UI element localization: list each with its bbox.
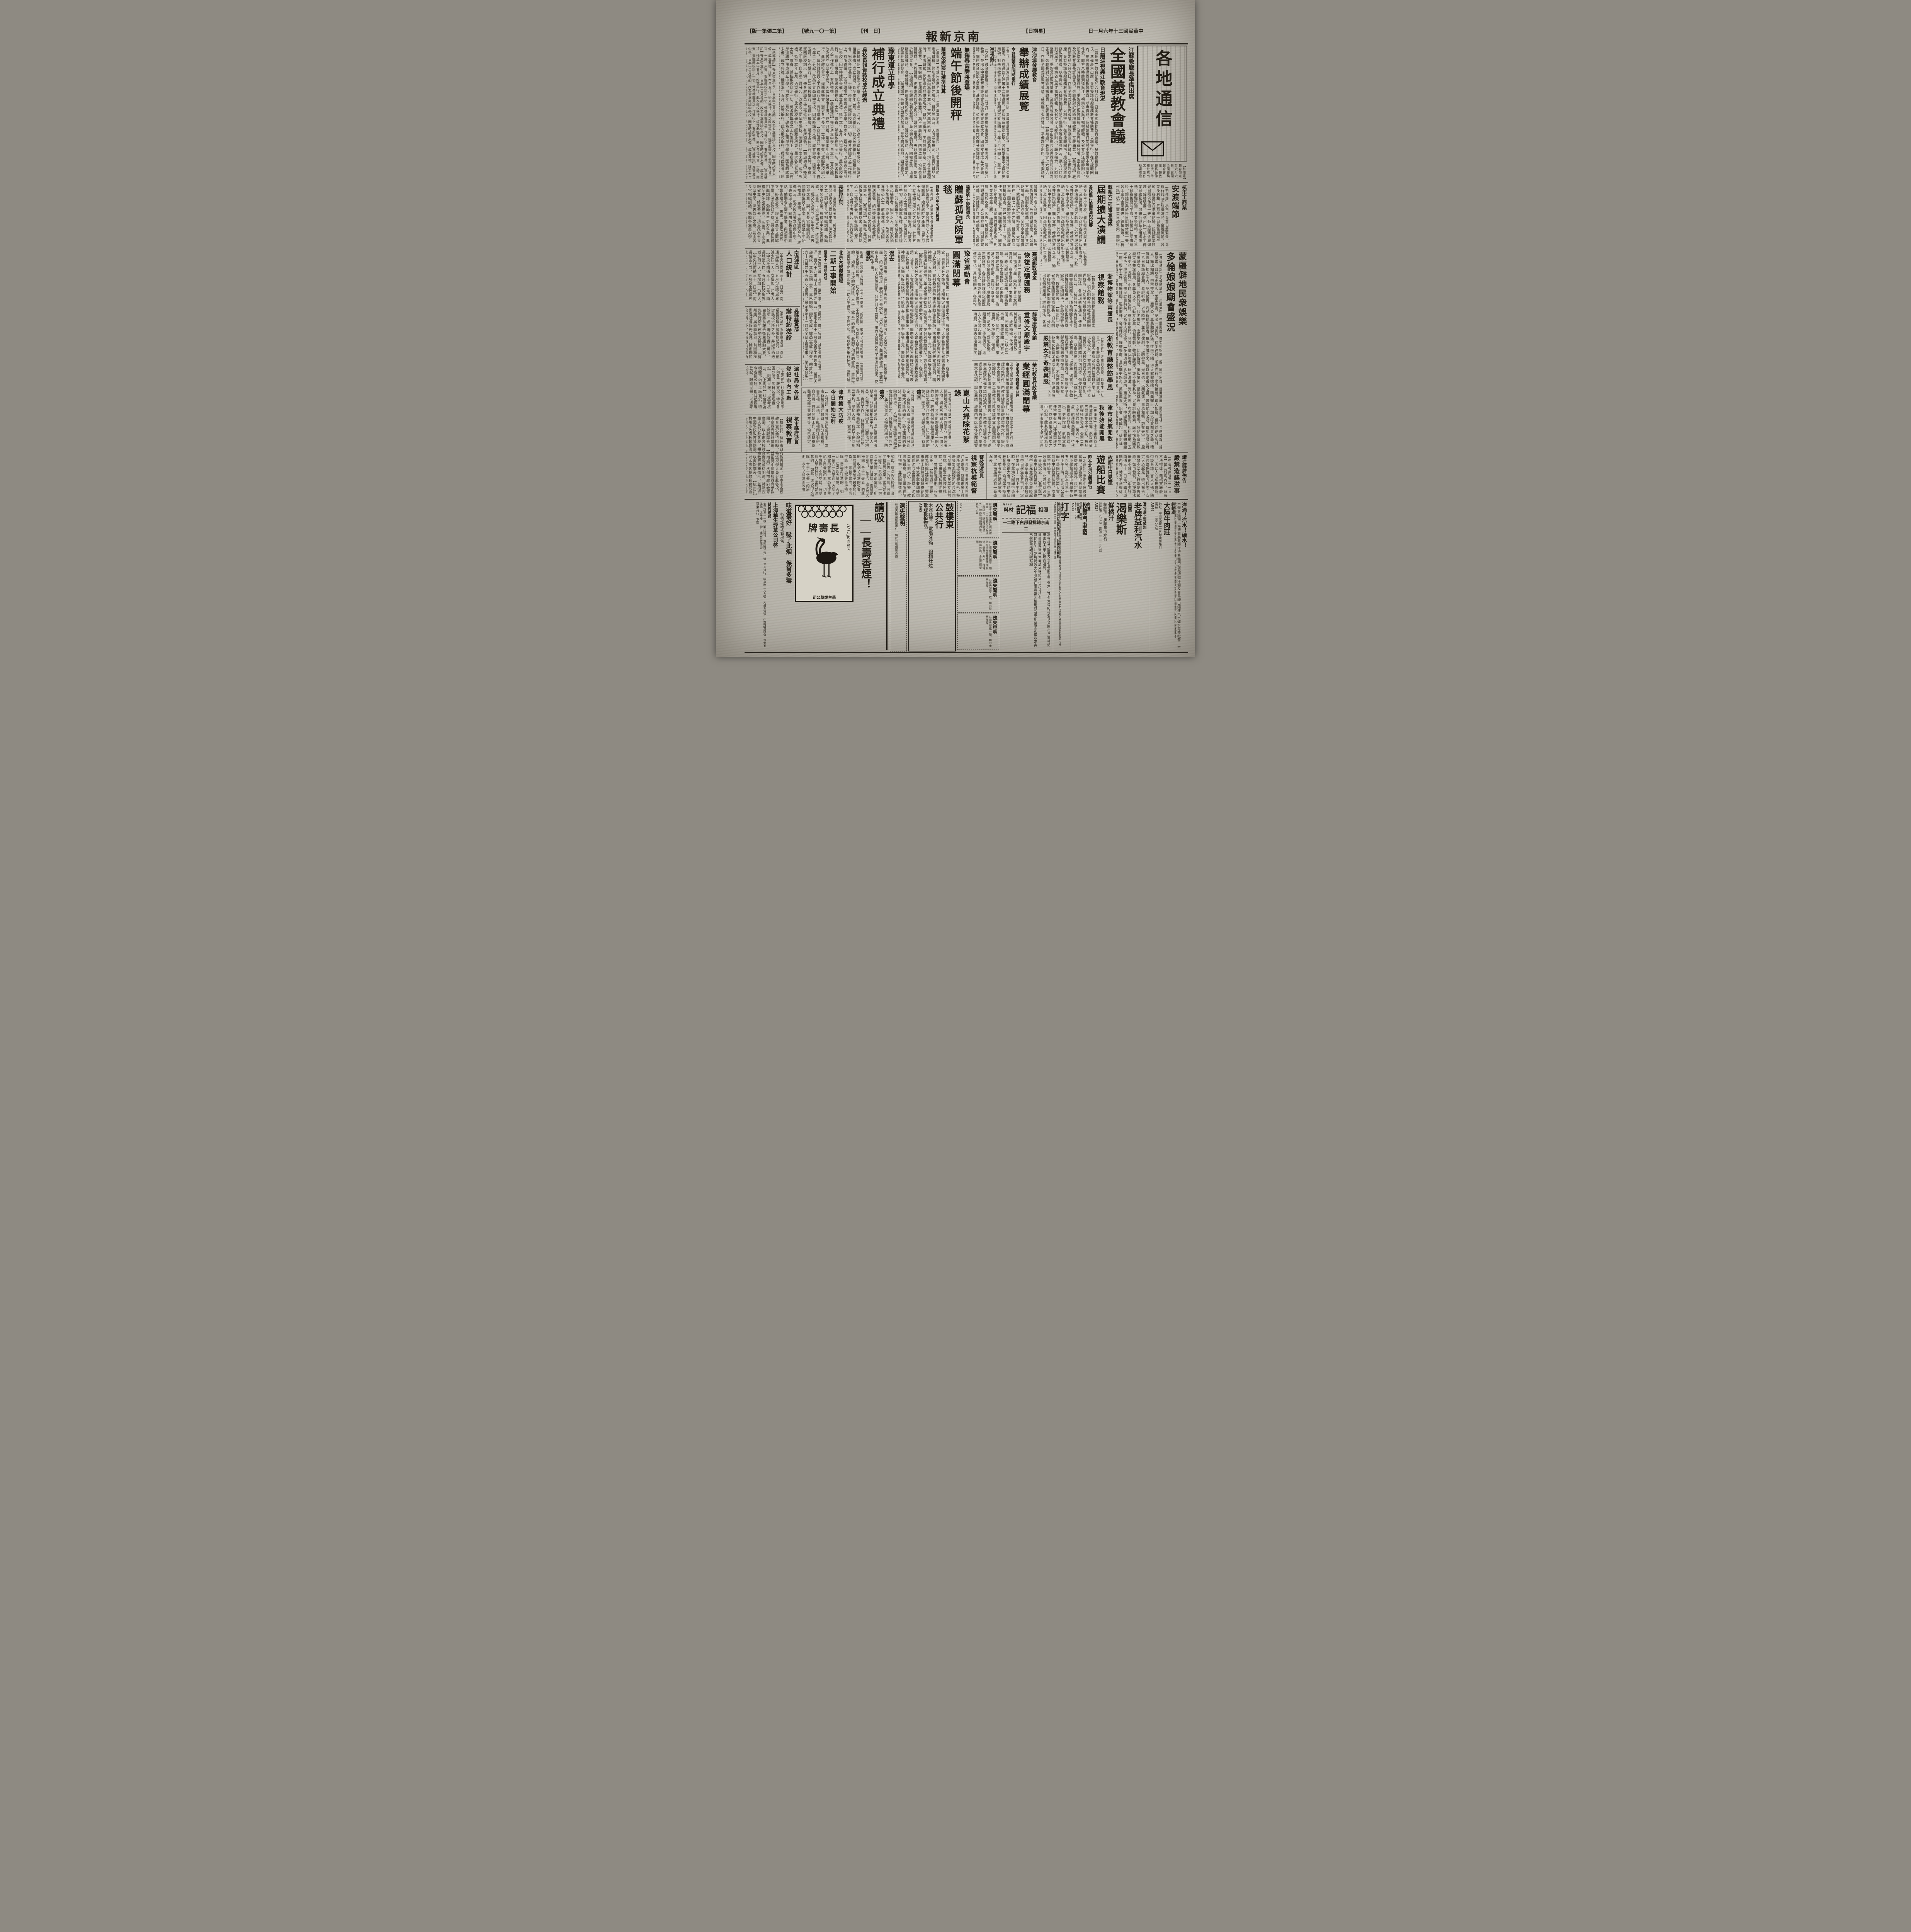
- ad-phone: 電話 二一三六七號: [1154, 502, 1158, 650]
- ad-line-3: 其他如AI乾片特製大小號箱在庫豐富照相用具及應用藥品定價非常克已荷蒙惠顧竭誠歡迎: [1028, 533, 1037, 649]
- article-kicker: 吳縣縣黨部: [793, 308, 799, 362]
- envelope-icon: [1141, 141, 1164, 158]
- article-quanguo: 江蘇教廳長準備出席 全國義教會議 日前巡視吳江教育現況 【蘇州訊】教育部定於六月…: [1039, 46, 1136, 182]
- article-body: 及收支教項清冊、呈署備查云、議案迄十四件、遂由主席將預備會議議決案件、計由教育總…: [973, 362, 1013, 451]
- ad-title-2-big: 渴樂斯: [1114, 502, 1127, 650]
- ad-kicker: 高價: [1087, 502, 1090, 650]
- notice-title: 遺失聲明: [898, 503, 905, 650]
- article-title: 二期工事開始: [828, 250, 836, 385]
- lead-in-1-body: 大掃除、是經首屆縣政會議討論決定、各機關人員三呼之下、並分別發給大掃除的舉行、防…: [884, 389, 914, 451]
- article-body: 業已大部完成、其第二期工事、亦已開始、即可完成、據悉全部工程費、約計洋一百六十九…: [803, 250, 821, 385]
- article-subtitle: 該院本月中旬補行開幕: [934, 185, 939, 246]
- article-body: 【天津訊】津市擴大防疫注射、本市各路要道注射班、則分金鋼橋、金華橋、旱橋、大紅橋…: [803, 389, 828, 451]
- article-kicker: 津海道發展教育: [1031, 47, 1037, 180]
- lost-notice-3: 遺失聲明 茲遺失證章一枚、特此聲明作廢、: [957, 577, 999, 613]
- edition-label: 【第二張第一版】: [747, 27, 787, 34]
- article-title: 遊船比賽: [1094, 455, 1105, 497]
- article-body: 【天津訊】津市雖有京山津浦兩線之便、然以適值五河匯集之中心點、故其航運極為發達、…: [1041, 405, 1097, 451]
- article-kicker: 故都中日兒童: [1107, 455, 1113, 497]
- article-body: 【中央社南通三十一日電】靖江城廂內外、時有不法棍徒、藉端實施敲詐、因此人心愈形惶…: [1116, 455, 1171, 497]
- bottom-rule: [745, 652, 1188, 653]
- article-body-2: 【又訊】教育廳張廳長、前日（廿九）偕同廳祕書張仰高、彭世芳、巡視吳江教育、並出席…: [973, 47, 988, 180]
- article-body: 【杭州訊】警政部為明瞭江浙兩省、暨滬市警士教練所辦理模範警情形、特派參事兼訓練司…: [898, 455, 968, 497]
- article-juntan: 陸軍第十師謝師長 贈蘇孤兒院軍毯 該院本月中旬補行開幕 【蘇州訊】吳縣私立孤兒教…: [846, 183, 971, 247]
- article-body: 【蘇州訊】吳縣私立孤兒教養院自開始籌備以來、蒙各界熱心人士慷慨解囊、始有該院之產…: [847, 185, 933, 246]
- article-title-line-2: 登記市內工廠: [785, 366, 791, 412]
- article-title: 視察杭模範警: [970, 455, 977, 497]
- article-judu: 蘇組六三拒毒宣傳隊 屆期擴大演講 各校舉行拒毒演說比賽 通令各中小學校、舉行拒毒…: [1039, 183, 1114, 270]
- ad-fuji-photo-supplies: 照相 福記 材料 A779 南京總批發部白下路二一二 利根櫻花筒裝及大包全紙五百…: [1000, 501, 1052, 651]
- ad-name: 大昌行啓: [1077, 502, 1080, 650]
- column-logo: 各地通信: [1137, 46, 1187, 162]
- article-wenmiao: 靜海唐官屯鎮 重修文廟殿宇 【靜海訊】頃據唐官屯鎮紳民呈稱、孔廟歷受致祭、歲時補…: [972, 310, 1038, 359]
- notice-body: 茲在揚州遺失圖章一顆、除在揚州登報聲明作廢外、倘有中外人士拾得、均屬無效、合應登…: [959, 541, 992, 574]
- article-body: 【中央社南通三十一日電】南通城區人口、五月份比較男界減少四一人、女增加一〇五人、…: [746, 250, 783, 304]
- article-zhefeng: 浙教育廳整飭學風 【杭州訊】浙省教育廳、以學生一切言行、各教職員悉應共負訓導責任…: [1039, 333, 1114, 402]
- daily-label: 【日 刊】: [858, 27, 883, 34]
- weekday-label: 【星期日】: [1023, 27, 1048, 34]
- article-fangyi: 津市擴大防疫 今日開始注射 【天津訊】津市擴大防疫注射、本市各路要道注射班、則分…: [801, 388, 845, 452]
- article-jingzheng: 警政部派員 視察杭模範警 【杭州訊】警政部為明瞭江浙兩省、暨滬市警士教練所辦理模…: [897, 453, 985, 499]
- notice-body: 茲迭失印鑑一顆、特此申明作廢、: [959, 616, 992, 648]
- article-kicker: 靜海唐官屯鎮: [1031, 312, 1037, 358]
- logo-foot-text: 【蘇州訊】教育部定於六月六日、召開全國義務教育會議、蘇教廳長張仲賢氏、準備赴京出…: [1137, 162, 1187, 182]
- ad-typing-school: 打字 本所開辦歷十二載已呈奉市府批准備案現擴充添設城南城北分所以便利來學之士續招…: [1053, 501, 1070, 651]
- notice-code: B3614: [959, 503, 962, 536]
- article-body: 【杭州訊】杭市工商業日趨繁榮、即銀行錢莊亦組織蓬勃、金融流通、各業多利賴、五月三…: [1116, 185, 1168, 247]
- article-songzhen: 吳縣縣黨部 辦特約送診 【蘇州訊】吳縣縣黨部、前因積極辦理社會服務起見、除創辦民…: [745, 306, 800, 363]
- cigarettes-illustration: [796, 505, 852, 520]
- ad-exchange-addresses: 太平路三一一號 瀨川洋行 莫愁路二六二號 三井洋行 中華路二八九號 大昌五洋號 …: [760, 502, 767, 650]
- article-title-line-1: 豫省運動會: [962, 250, 970, 385]
- article-title: 嚴禁造謠滋事: [1173, 455, 1180, 497]
- article-body: 通令各中小學校、舉行拒毒演說比賽、㈤製發標語、及告民衆書、㈥商請各報館出版拒毒專…: [1041, 185, 1086, 269]
- notice-title: 遺失聲明: [992, 503, 998, 536]
- notice-title: 迭失申明: [992, 616, 998, 648]
- article-huabei: 華北教育行政會議 業經圓滿閉幕 決定通令辦理案四件 及收支教項清冊、呈署備查云、…: [972, 361, 1038, 452]
- ad-address: 地址 中山北路二一五號廣州路口: [1158, 502, 1162, 650]
- article-title-line-2: 視察館務: [1096, 274, 1105, 331]
- lead-in-2-body: 各機關掃除的地段、是由縣府預先擬定、分配得相當平均、參加人員、負荷了掃除用具、出…: [847, 389, 877, 451]
- article-subtitle: 日前巡視吳江教育現況: [1099, 47, 1105, 180]
- lead-in-2: 這次: [878, 389, 884, 451]
- article-body: 如此、這次的大掃除、合乎一做去一的原則、收到了相當的效果、當局是注重給予民衆的印…: [802, 455, 894, 497]
- left-edge-column: 【商邱通訊】豫東道立中學、自本年二月分起、改為省立商邱中學校、因當時諸事未備、成…: [745, 46, 777, 182]
- pack-side-text: 10 Cigarettes: [845, 524, 852, 589]
- article-title: 恢復定額匯務: [1022, 252, 1030, 308]
- article-subtitle: 繭價依照部訂標準計算: [940, 47, 946, 180]
- ad-title-1: 老牌益利汽水: [1132, 502, 1142, 650]
- article-title: 端午節後開秤: [947, 47, 962, 180]
- article-subtitle: 決定通令辦理案四件: [1014, 362, 1019, 451]
- article-kicker: 陸軍第十師謝師長: [965, 185, 970, 246]
- lead-in-past: 過去: [888, 250, 894, 385]
- article-title: 全國義教會議: [1107, 47, 1126, 180]
- ad-title: 收買汽車廢: [1083, 502, 1087, 650]
- crane-illustration: [796, 534, 852, 582]
- ad-category-right: 照相: [1039, 506, 1049, 513]
- article-kicker: 南通城區: [793, 250, 799, 304]
- article-title: 業經圓滿閉幕: [1020, 362, 1030, 451]
- article-subtitle: 令各縣定期同時舉行: [1010, 47, 1015, 180]
- lead-in-1: 這回: [915, 389, 921, 451]
- article-kicker: 豫東道立中學: [886, 47, 895, 180]
- article-subhead: 巡視吳江: [989, 47, 995, 180]
- article-jinhaidao: 津海道發展教育 舉辦成績展覽 令各縣定期同時舉行 五日止、凡津海道所屬各縣同時舉…: [972, 46, 1038, 182]
- article-renkou: 南通城區 人口統計 【中央社南通三十一日電】南通城區人口、五月份比較男界減少四一…: [745, 248, 800, 305]
- article-title: 安渡端節: [1170, 185, 1179, 247]
- ad-tagline: 歡迎投拍物品: [922, 503, 927, 649]
- article-title-line-1: 津市民航閒散: [1106, 405, 1113, 451]
- article-duanwu-continuation: 據聞今年各小絲廠、對於收繭、因去年虧蝕關係、故抱觀望態度、大公司方面、則擬收買乾…: [972, 183, 1038, 249]
- ad-name-line-1: 鼓樓東: [944, 503, 954, 649]
- article-body: 【商邱通訊】豫東道立中學、自本年二月分起、改為省立商邱中學校、因當時諸事未備、成…: [746, 47, 776, 180]
- article-title: 視察教育: [784, 417, 792, 497]
- article-title-line-1: 滬社局令各區: [793, 366, 799, 412]
- article-nongchang: 北京大規模農場 二期工事開始 預定十一月底完成 業已大部完成、其第二期工事、亦已…: [801, 248, 845, 386]
- article-kicker: 無錫春繭瞬將登場: [963, 47, 970, 180]
- ad-title: 打字: [1061, 502, 1069, 650]
- article-title: 屆期擴大演講: [1094, 185, 1105, 269]
- article-title: 辦特約送診: [785, 308, 792, 362]
- article-kicker: 華北教育行政會議: [1031, 362, 1037, 451]
- article-title-line-1: 蒙疆僻地民衆娛樂: [1177, 252, 1187, 451]
- article-kunshan-tail: 如此、這次的大掃除、合乎一做去一的原則、收到了相當的效果、當局是注重給予民衆的印…: [801, 453, 896, 499]
- article-kicker: 蕪湖郵政儲金: [1031, 252, 1037, 308]
- article-subhead: 長官訓詞: [837, 185, 843, 246]
- article-body: 【蘇州訊】教育部定於六月六日、召開全國義務教育會議、蘇教廳長張仲賢氏、準備赴京出…: [1041, 47, 1098, 180]
- article-shichajy: 杭市縣府派員 視察教育 【杭州訊】杭州市政府教育廳函、以本市各校教育實況亟待明瞭…: [745, 415, 800, 498]
- ad-seller-name: 大陸牛肉莊: [1162, 502, 1170, 650]
- article-body: 【蘇州訊】吳縣縣黨部、前因積極辦理社會服務起見、除創辦民校六所之外、并辦特約送診…: [746, 308, 783, 362]
- article-title-line-2: 秋後始能開展: [1098, 405, 1105, 451]
- article-body: 【蘇州訊】教育部定於六月六日、召開全國義務教育會議、蘇教廳長張仲賢氏、準備赴京出…: [1138, 164, 1186, 181]
- article-jingjiang: 靖江縣府佈告 嚴禁造謠滋事 【中央社南通三十一日電】靖江城廂內外、時有不法棍徒、…: [1115, 453, 1188, 499]
- lost-notice-4: 迭失申明 茲迭失印鑑一顆、特此申明作廢、: [957, 614, 999, 650]
- article-body: 【商邱通訊】豫東道立中學、自本年二月分起、改為省立商邱中學校、因當時諸事未備、成…: [779, 47, 860, 180]
- issue-date: 中華民國三十年六月一日: [1056, 27, 1176, 34]
- ad-car-scrap-buyer: 高價 收買汽車廢 電池 車胎 大昌行啓 碑亭巷十六號 A518: [1071, 501, 1092, 651]
- article-youchuan: 故都中日兒童 遊船比賽 昨在北海公園舉行 【北京訊】京市中日教育當局、頃為使中日…: [986, 453, 1114, 499]
- ad-shop-name: 福記: [1016, 502, 1036, 517]
- pack-brand: 長壽牌: [796, 520, 852, 534]
- article-minhang: 津市民航閒散 秋後始能開展 【天津訊】津市雖有京山津浦兩線之便、然以適值五河匯集…: [1039, 403, 1114, 452]
- article-subtitle: 各校舉行拒毒演說比賽: [1088, 185, 1093, 269]
- lead-in-past-body: 的大掃除情形、我們且不去說它、果然大掃除收到了美滿的效果、花絮寫在下面、 的大掃…: [871, 250, 887, 385]
- article-kicker: 靖江縣府佈告: [1181, 455, 1187, 497]
- article-body: 【開封訊】河南省垣第一屆全省運動大會、經教育廳積極籌備之下、各項事宜、皆有充分之…: [898, 250, 949, 385]
- ad-items: 木器毯蓆 電扇冰箱 銀櫃灶爐: [928, 503, 933, 649]
- ad-title-2-small: 美國: [1127, 502, 1132, 650]
- masthead: 南京新報: [911, 27, 996, 44]
- article-subtitle: 昨在北海公園舉行: [1087, 455, 1092, 497]
- ad-line-1: 利根櫻花筒裝及大包全紙五百張大六寸有光像紙均有現貨應市八重粗紙細面放大紙亦最近運…: [1041, 533, 1050, 649]
- article-body: 【北京訊】京市中日教育當局、頃為使中日兒童感情益敦睦起見、決定由中日小學校選派中…: [988, 455, 1086, 497]
- ad-availability: 各香煙店均有出售: [779, 502, 784, 651]
- header-rule: [745, 43, 1188, 44]
- article-body: 據聞今年各小絲廠、對於收繭、因去年虧蝕關係、故抱觀望態度、大公司方面、則擬收買乾…: [973, 185, 1037, 247]
- article-title: 贈蘇孤兒院軍毯: [940, 185, 963, 246]
- article-body: 五日止、凡津海道所屬各縣同時舉辦、其成績展覽會辦法、業已由津海道公署擬定、昨經通…: [995, 47, 1009, 180]
- article-body: 【本報崑山通訊】明媚的春天、已悄悄地逝去、薰熱的陽光、普照著大地、初夏已臨到人間…: [921, 389, 951, 451]
- issue-number: 【第一〇一九號】: [799, 27, 839, 34]
- lead-in-though-body: 如此、這次的大掃除、合乎一做去一的原則、收到了相當的效果、當局是注重給予民衆的印…: [847, 250, 863, 385]
- ad-changshou-cigarettes: 請吸 ——長壽香煙！ 長壽牌: [745, 501, 889, 651]
- ad-agent: 總經理 廣順昌汽水行: [1102, 502, 1107, 650]
- lost-notice-1: 遺失聲明 茲遺失中央電訊社職員證章第三三三號長方形有邊正楷陽文、除呈請補發外、特…: [957, 501, 999, 538]
- article-yundong: 豫省運動會 圓滿閉幕 【開封訊】河南省垣第一屆全省運動大會、經教育廳積極籌備之下…: [897, 248, 971, 386]
- article-body: 【靜海訊】頃據唐官屯鎮紳民呈稱、孔廟歷受致祭、歲時補修、代代相沿、罔敢或間、乃以…: [973, 312, 1021, 358]
- article-title: 人口統計: [784, 250, 792, 304]
- ad-name-line-2: 公共行: [933, 503, 944, 649]
- article-kicker: 杭市工商業: [1181, 185, 1187, 247]
- ad-auction-house: 鼓樓東 公共行 木器毯蓆 電扇冰箱 銀櫃灶爐 歡迎投拍物品 A965: [908, 501, 956, 651]
- lost-notice-2: 遺失聲明 茲在揚州遺失圖章一顆、除在揚州登報聲明作廢外、倘有中外人士拾得、均屬無…: [957, 539, 999, 576]
- article-gongchang: 滬社局令各區 登記市內工廠 【上海訊】社會局為明瞭市內各工廠實況、特令各區公所、…: [745, 364, 800, 413]
- article-subtitle: 吳校長報告該校成立經過: [861, 47, 867, 180]
- ad-dalu-beef-shop: 洋酒！汽水！礦水！ 本號專經理上海德商美最時洋行各種門祿冠牌號洋酒及青島嶗山縮達…: [1149, 501, 1188, 651]
- ad-slogan-invite: 請吸: [872, 502, 887, 650]
- ad-code: A840: [1150, 502, 1154, 650]
- newspaper-page: 中華民國三十年六月一日 【星期日】 南京新報 【日 刊】 【第一〇一九號】 【第…: [716, 0, 1195, 657]
- article-kicker: 北京大規模農場: [838, 250, 843, 385]
- ad-body: 本號專經理上海德商美最時洋行各種門祿冠牌號洋酒及青島嶗山縮達汽水礦水零整批發 本…: [1175, 502, 1181, 650]
- ad-title-2-tail: 鮮橘汁: [1107, 502, 1114, 650]
- article-kicker: 江蘇教廳長準備出席: [1127, 47, 1134, 180]
- pack-maker: 華生煙草公司: [796, 594, 852, 600]
- ad-address: 南京總批發部白下路二一二: [1002, 519, 1050, 533]
- article-duanwu: 無錫春繭瞬將登場 端午節後開秤 繭價依照部訂標準計算 【無錫訊】吾錫向為著名蠶汛…: [897, 46, 971, 182]
- ad-code: A827: [1094, 502, 1098, 650]
- lost-notice-main: 遺失聲明 茲遺失圖章印鑑等件、特此登報聲明作廢、: [890, 501, 907, 651]
- article-subtitle: 預定十一月底完成: [822, 250, 827, 385]
- ad-line-2: 維羅娜厚簿半光面放大咪紙大小尺寸均有: [1037, 533, 1041, 649]
- article-yudong: 豫東道立中學 補行成立典禮 吳校長報告該校成立經過 【商邱通訊】豫東道立中學、自…: [778, 46, 896, 182]
- ad-code: A779: [1003, 502, 1012, 506]
- article-hangshang: 杭市工商業 安渡端節 【杭州訊】杭市工商業日趨繁榮、即銀行錢莊亦組織蓬勃、金融流…: [1115, 183, 1188, 249]
- article-title-line-2: 今日開始注射: [830, 389, 836, 451]
- article-title-line-2: 多倫娘娘廟會盛況: [1164, 252, 1175, 451]
- article-kicker: 杭市縣府派員: [793, 417, 799, 497]
- article-title-line-2: 圓滿閉幕: [950, 250, 961, 385]
- article-body: 【蕪湖訊】郵政儲金、簡便穩固、擔保可靠、向為各界士女所賞許者、在事變以前、本埠郵…: [973, 252, 1021, 308]
- notice-title: 遺失聲明: [992, 541, 998, 574]
- article-body: 【多倫通訊】多倫縣城內、東盛大街、中間路西、舊有娘娘廟一座、殿宇宏偉、廊廡壯麗、…: [1116, 252, 1162, 451]
- ad-agent: 亞東商行 下關: [756, 502, 760, 650]
- article-kunshan-sidebar: 過去 的大掃除情形、我們且不去說它、果然大掃除收到了美滿的效果、花絮寫在下面、 …: [846, 248, 896, 386]
- article-title-line-1: 津市擴大防疫: [837, 389, 843, 451]
- notice-body: 茲遺失中央電訊社職員證章第三三三號長方形有邊正楷陽文、除呈請補發外、特此登報聲明…: [962, 503, 992, 536]
- ad-kicker: 夏令最上等飲料: [1142, 502, 1146, 650]
- article-title: 舉辦成績展覽: [1017, 47, 1029, 180]
- article-title: 崑山大掃除花絮錄: [953, 389, 970, 451]
- ad-yili-soda: 夏令最上等飲料 老牌益利汽水 美國 渴樂斯 鮮橘汁 總經理 廣順昌汽水行 洪武路…: [1093, 501, 1148, 651]
- article-kunshan: 崑山大掃除花絮錄 【本報崑山通訊】明媚的春天、已悄悄地逝去、薰熱的陽光、普照著大…: [846, 388, 971, 452]
- article-title-line-1: 浙教育廳整飭學風: [1105, 335, 1113, 400]
- article-body: 【無錫訊】吾錫向為著名蠶汛、莫不興高彩烈、四鄉農民、均年發售蠶種時、老牌蠶種、仍…: [898, 47, 939, 180]
- notice-body: 茲遺失證章一枚、特此聲明作廢、: [959, 578, 992, 611]
- notice-title: 遺失聲明: [992, 578, 998, 611]
- article-body: 等畫、主張改歸省立、終進云云、現又改為省立商邱中學、深表歡迎之意、嗣由各長官相繼…: [746, 185, 836, 246]
- article-body: 【杭州訊】浙省博物館圖書館兩館長、頃為明瞭各地社教機關辦理概況、分別出發視察館務…: [1041, 274, 1095, 331]
- article-title-line-2: 嚴禁女子奇裝異服: [1042, 335, 1049, 400]
- cigarette-pack-illustration: 長壽牌 10 Cigarettes 華生煙草公司: [795, 505, 853, 602]
- article-kicker: 蘇組六三拒毒宣傳隊: [1107, 185, 1113, 269]
- ad-category-left: 材料: [1003, 506, 1013, 513]
- article-yudong-continuation: 長官訓詞 等畫、主張改歸省立、終進云云、現又改為省立商邱中學、深表歡迎之意、嗣由…: [745, 183, 845, 247]
- article-youzheng: 蕪湖郵政儲金 恢復定額匯務 【蕪湖訊】郵政儲金、簡便穩固、擔保可靠、向為各界士女…: [972, 250, 1038, 309]
- article-kicker: 警政部派員: [978, 455, 984, 497]
- article-title: 補行成立典禮: [869, 47, 885, 180]
- article-body: 【杭州訊】浙省教育廳、以學生一切言行、各教職員悉應共負訓導責任、迭經函令市縣政府…: [1049, 335, 1103, 400]
- ad-taste-slogan: 味道最好 吸了此烟 保爾多壽: [785, 502, 792, 650]
- ad-headline: 洋酒！汽水！礦水！: [1181, 502, 1187, 650]
- lead-in-though: 雖然: [864, 250, 871, 385]
- lost-notices-column: 遺失聲明 茲遺失中央電訊社職員證章第三三三號長方形有邊正楷陽文、除呈請補發外、特…: [957, 501, 999, 651]
- ad-slogan-brand: ——長壽香煙！: [859, 502, 872, 651]
- ad-company: 上海華生煙草公司啓: [772, 502, 778, 650]
- article-bowuguan: 浙博物舘等兩館長 視察館務 【杭州訊】浙省博物館圖書館兩館長、頃為明瞭各地社教機…: [1039, 272, 1114, 332]
- notice-body: 茲遺失圖章印鑑等件、特此登報聲明作廢、: [891, 503, 898, 650]
- ad-address: 洪武路二八七號 電話二三一三八號: [1098, 502, 1102, 650]
- article-body: 【上海訊】社會局為明瞭市內各工廠實況、特令各區公所、即日起辦理登記、限期呈報、以…: [746, 366, 784, 412]
- ad-code: A965: [918, 503, 922, 649]
- article-mengjiang: 蒙疆僻地民衆娛樂 多倫娘娘廟會盛況 【多倫通訊】多倫縣城內、東盛大街、中間路西、…: [1115, 250, 1188, 452]
- ad-exchange-title: 總掉換處: [767, 502, 771, 650]
- article-body: 【杭州訊】杭州市政府教育廳函、以本市各校教育實況亟待明瞭、特派視學人員分赴各校、…: [746, 417, 783, 497]
- article-title-line-1: 浙博物舘等兩館長: [1106, 274, 1113, 331]
- ad-seller-label: 經銷處: [1170, 502, 1175, 650]
- ad-band-rule: [745, 499, 1188, 500]
- article-title: 重修文廟殿宇: [1023, 312, 1030, 358]
